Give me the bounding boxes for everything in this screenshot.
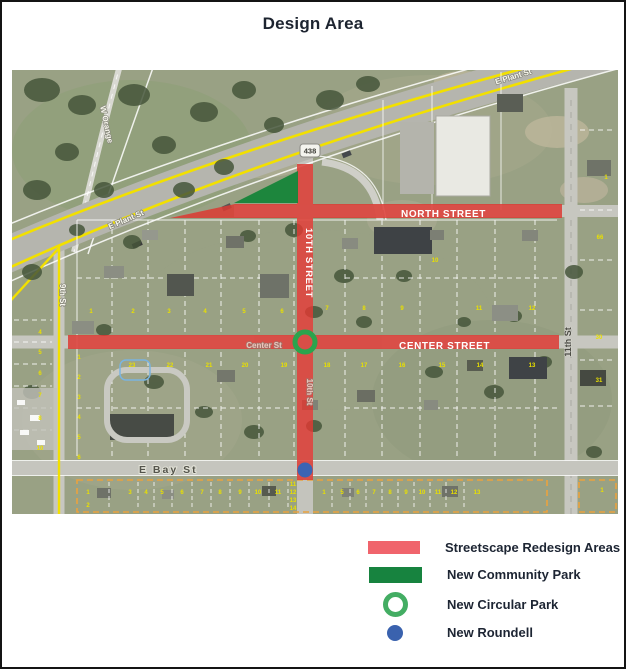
- legend-label: New Roundell: [447, 625, 533, 640]
- aerial-map-svg: 438 NORTH STREETCENTER STREET10TH STREET…: [12, 70, 618, 514]
- lot-number: 11: [435, 490, 442, 496]
- lot-number: 11: [275, 490, 282, 496]
- street-label-ninth-st: 9th St: [58, 284, 67, 307]
- lot-number: 12: [529, 306, 536, 312]
- lot-number: 13: [529, 363, 536, 369]
- lot-number: 15: [439, 363, 446, 369]
- street-label-center-st-painted: Center St: [246, 341, 282, 350]
- lot-number: 66: [597, 235, 604, 241]
- lot-number: 23: [129, 363, 136, 369]
- lot-number: 14: [477, 363, 484, 369]
- lot-number: 10: [419, 490, 426, 496]
- lot-number: 13: [474, 490, 481, 496]
- legend-item-streetscape: Streetscape Redesign Areas: [368, 540, 618, 554]
- lot-number: 18: [324, 363, 331, 369]
- lot-number: 12: [451, 490, 458, 496]
- street-label-north-street: NORTH STREET: [401, 209, 486, 220]
- north-street-overlay: [235, 204, 562, 218]
- streetscape-swatch: [368, 541, 420, 554]
- lot-number: 17: [361, 363, 368, 369]
- lot-number: 10: [255, 490, 262, 496]
- legend-label: New Community Park: [447, 567, 581, 582]
- legend: Streetscape Redesign Areas New Community…: [368, 540, 618, 641]
- design-area-map: 438 NORTH STREETCENTER STREET10TH STREET…: [12, 70, 618, 514]
- street-label-center-street: CENTER STREET: [399, 341, 490, 352]
- legend-item-roundell: New Roundell: [368, 624, 618, 641]
- new-roundell-marker: [298, 463, 313, 478]
- lot-number: 13: [290, 498, 297, 504]
- route-shield-number: 438: [304, 147, 317, 156]
- lot-number: 10: [37, 446, 44, 452]
- lot-number: 22: [167, 363, 174, 369]
- circular-park-swatch: [383, 592, 408, 617]
- street-label-tenth-st-painted: 10th St: [305, 379, 314, 406]
- lot-number: 14: [290, 506, 297, 512]
- lot-number: 12: [290, 490, 297, 496]
- lot-number: 31: [596, 378, 603, 384]
- roundell-swatch: [387, 625, 403, 641]
- legend-label: New Circular Park: [447, 597, 558, 612]
- legend-item-circular-park: New Circular Park: [368, 592, 618, 617]
- legend-item-community-park: New Community Park: [368, 566, 618, 583]
- route-shield: 438: [300, 144, 320, 157]
- street-label-e-bay-st: E Bay St: [139, 464, 198, 476]
- lot-number: 20: [242, 363, 249, 369]
- tenth-street-overlay-band: [297, 164, 313, 480]
- street-label-tenth-street-overlay: 10TH STREET: [303, 228, 314, 298]
- lot-number: 30: [596, 335, 603, 341]
- design-area-figure: Design Area: [0, 0, 626, 669]
- junk-yard: [12, 388, 57, 450]
- lot-number: 11: [476, 306, 483, 312]
- community-park-swatch: [369, 567, 422, 583]
- page-title: Design Area: [2, 14, 624, 34]
- street-label-eleventh-st: 11th St: [563, 327, 573, 357]
- lot-number: 10: [432, 258, 439, 264]
- lot-number: 19: [281, 363, 288, 369]
- lot-number: 16: [399, 363, 406, 369]
- legend-label: Streetscape Redesign Areas: [445, 540, 620, 555]
- lot-number: 21: [206, 363, 213, 369]
- lot-number: 11: [290, 482, 297, 488]
